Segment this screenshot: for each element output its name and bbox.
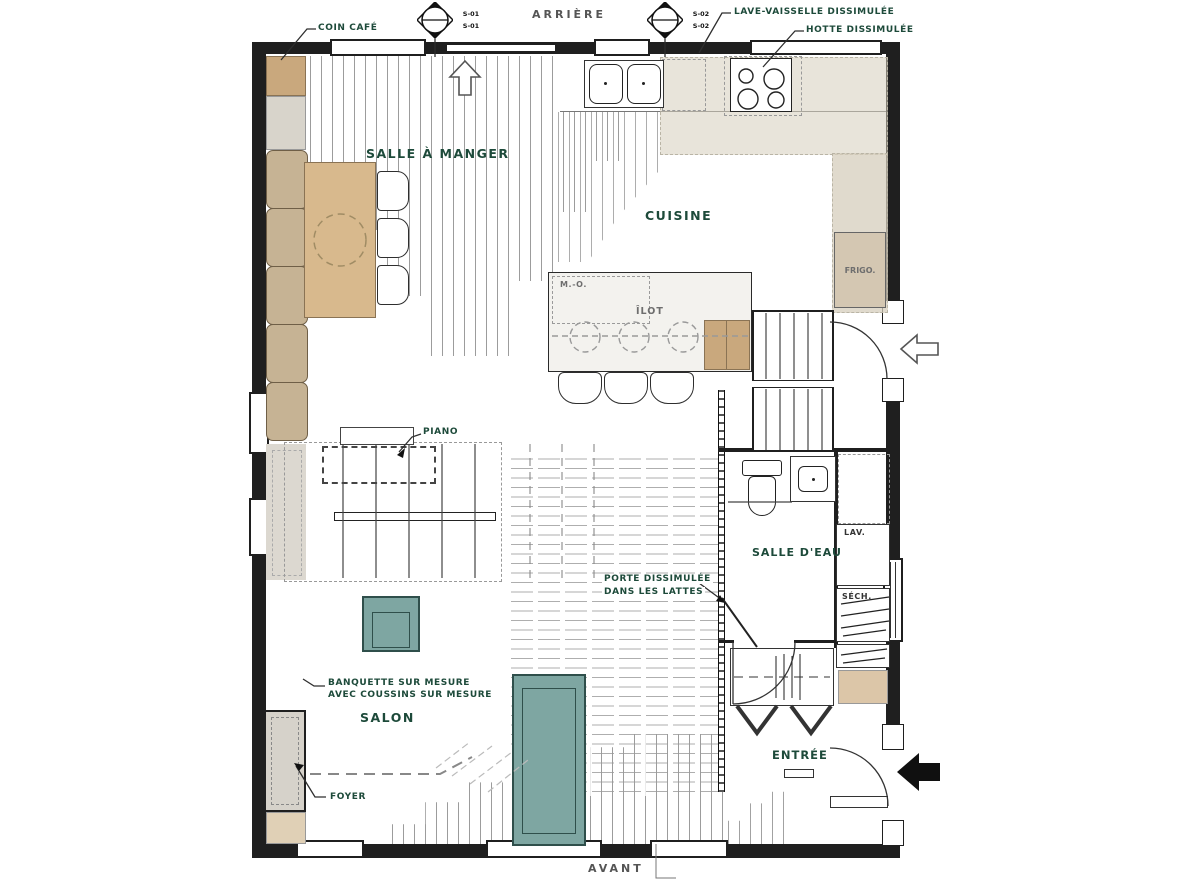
dining-chair	[377, 171, 409, 211]
fireplace	[264, 710, 306, 812]
side-door-opening	[884, 322, 902, 380]
elevation-marker-1: S-01 S-01	[417, 2, 453, 38]
stair-handrail	[334, 512, 496, 521]
coffee-corner-cabinet	[266, 96, 306, 150]
island-label: ÎLOT	[636, 306, 664, 317]
window-back-3	[750, 40, 882, 55]
sofa	[512, 674, 586, 846]
coin-cafe-label: COIN CAFÉ	[318, 23, 378, 33]
stair-right-landing-line	[752, 380, 834, 388]
elevation-marker-2: S-02 S-02	[647, 2, 683, 38]
fireplace-wood-storage	[266, 812, 306, 844]
banquette-cushion	[266, 382, 308, 441]
toilet-tank	[742, 460, 782, 476]
wood-floor-pattern-kitchen	[558, 112, 658, 262]
marker-2-top-label: S-02	[683, 10, 719, 18]
lave-vaisselle-label: LAVE-VAISSELLE DISSIMULÉE	[734, 7, 894, 17]
front-entry-arrow-icon	[897, 753, 940, 791]
microwave-label: M.-O.	[560, 280, 587, 289]
entry-label: ENTRÉE	[772, 748, 828, 762]
front-door-jamb-top	[882, 724, 904, 750]
window-back-1	[330, 39, 426, 56]
living-room-label: SALON	[360, 710, 415, 725]
marker-1-top-label: S-01	[453, 10, 489, 18]
direction-front-label: AVANT	[588, 862, 644, 875]
piano-outline	[322, 446, 436, 484]
elevation-marker-2-shape	[647, 2, 683, 38]
dining-chair	[377, 265, 409, 305]
island-chair	[604, 372, 648, 404]
floor-plan: FRIGO.	[0, 0, 1184, 888]
window-front-1	[296, 840, 364, 858]
island-wood-seam	[726, 321, 727, 369]
bifold-doors	[737, 706, 831, 733]
stove	[730, 58, 792, 112]
vanity-drain	[812, 478, 815, 481]
foyer-label: FOYER	[330, 792, 366, 802]
window-front-3	[650, 840, 728, 858]
banquette-label-line2: AVEC COUSSINS SUR MESURE	[328, 690, 492, 700]
banquette-cushion	[266, 150, 308, 209]
coffee-corner-counter	[266, 56, 306, 96]
fridge-label: FRIGO.	[845, 266, 876, 275]
washer-label: LAV.	[844, 528, 865, 537]
marker-2-bottom-label: S-02	[683, 22, 719, 30]
sink-drain-right	[642, 82, 645, 85]
dining-room-label: SALLE À MANGER	[366, 146, 510, 161]
side-door-jamb-bottom	[882, 378, 904, 402]
island-chair	[558, 372, 602, 404]
fireplace-inner	[271, 717, 299, 805]
front-door-jamb-bottom	[882, 820, 904, 846]
front-door-opening	[884, 748, 902, 822]
dryer-label: SÉCH.	[842, 592, 872, 601]
elevation-marker-1-shape	[417, 2, 453, 38]
island-wood-section	[704, 320, 750, 370]
bath-wall-bottom-a	[718, 640, 734, 643]
bath-wall-bottom-b	[794, 640, 836, 643]
window-right-glazing	[890, 562, 896, 638]
window-back-glazing	[446, 44, 556, 52]
front-door-leaf	[830, 796, 888, 808]
direction-back-label: ARRIÈRE	[532, 8, 606, 21]
entry-closet	[730, 648, 834, 706]
hotte-label: HOTTE DISSIMULÉE	[806, 25, 914, 35]
sofa-cushion	[522, 688, 576, 834]
hidden-door-label-line1: PORTE DISSIMULÉE	[602, 574, 713, 584]
toilet-bowl	[748, 476, 776, 516]
bathroom-label: SALLE D'EAU	[752, 546, 842, 559]
storage-box	[836, 644, 890, 668]
entry-bench	[838, 670, 888, 704]
side-entry-arrow-icon	[901, 335, 938, 363]
banquette-cushion	[266, 324, 308, 383]
dining-chair	[377, 218, 409, 258]
banquette-cushion	[266, 208, 308, 267]
armchair-seat	[372, 612, 410, 648]
dining-table	[304, 162, 376, 318]
piano-bench	[340, 427, 414, 445]
armchair	[362, 596, 420, 652]
marker-1-bottom-label: S-01	[453, 22, 489, 30]
island-chair	[650, 372, 694, 404]
hidden-door-label-line2: DANS LES LATTES	[602, 587, 705, 597]
piano-label: PIANO	[423, 427, 458, 437]
window-back-2	[594, 39, 650, 56]
linen-closet	[838, 454, 890, 524]
banquette-cushion	[266, 266, 308, 325]
dishwasher-hidden	[662, 59, 706, 111]
wood-floor-pattern-entry	[728, 786, 792, 844]
banquette-label-line1: BANQUETTE SUR MESURE	[328, 678, 470, 688]
kitchen-label: CUISINE	[645, 208, 712, 223]
sink-drain-left	[604, 82, 607, 85]
entry-mat	[784, 769, 814, 778]
salon-dashed-line	[310, 757, 472, 774]
fridge: FRIGO.	[834, 232, 886, 308]
